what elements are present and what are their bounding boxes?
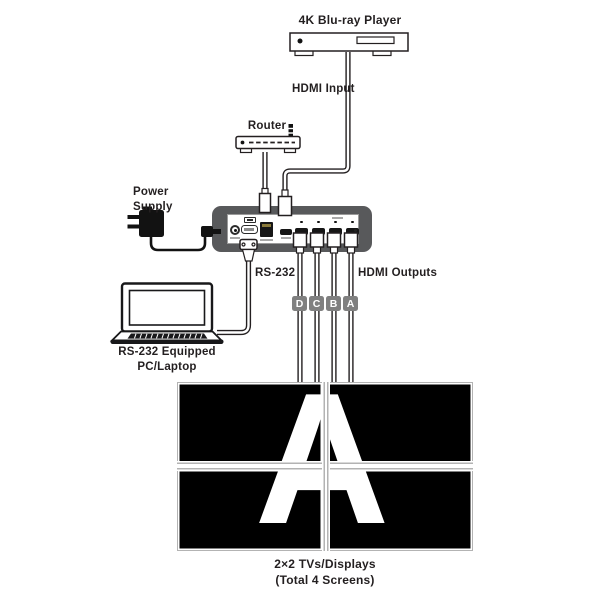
display-top-right [327,382,473,464]
bluray-player-illustration [290,33,408,56]
rs232-db9-port [241,225,258,235]
rs232-cable [217,260,249,333]
micro-label-mark [230,237,240,239]
dc-power-jack [230,225,240,235]
output-tag-a: A [343,296,358,311]
panel-screw [354,229,357,232]
hdmi-outputs-label: HDMI Outputs [358,266,437,281]
wall-vertical-bezel-seam [322,382,330,551]
video-wall: A [177,382,473,551]
output-tag-c: C [309,296,324,311]
micro-label-mark [332,217,343,219]
wall-caption: 2×2 TVs/Displays (Total 4 Screens) [225,557,425,588]
bluray-label: 4K Blu-ray Player [270,13,430,29]
bluray-disc-tray [357,37,394,44]
display-bottom-right [327,469,473,551]
port-led-b [334,221,337,224]
display-bottom-left [177,469,323,551]
hdmi-output-port-b [329,228,342,235]
output-tag-b: B [326,296,341,311]
micro-label-mark [281,237,291,239]
laptop-base-edge [111,340,224,345]
hdmi-input-port [280,229,292,235]
hdmi-output-port-c [312,228,325,235]
diagram-canvas: A [0,0,600,600]
laptop-label: RS-232 Equipped PC/Laptop [96,345,238,375]
power-cable [151,226,221,250]
controller-rear-panel [227,214,359,244]
laptop-keyboard [128,334,208,339]
port-led-d [300,221,303,224]
rs232-label: RS-232 [255,266,295,281]
bluray-power-led [298,39,303,44]
micro-label-mark [260,239,273,241]
display-top-left [177,382,323,464]
port-led-a [351,221,354,224]
power-supply-label: Power Supply [133,185,173,215]
laptop-illustration [111,284,224,345]
hdmi-output-port-d [295,228,308,235]
usb-port [244,217,256,223]
output-tag-d: D [292,296,307,311]
hdmi-input-label: HDMI Input [292,82,355,97]
port-led-c [317,221,320,224]
router-label: Router [236,119,298,134]
ethernet-control-port [260,222,273,237]
